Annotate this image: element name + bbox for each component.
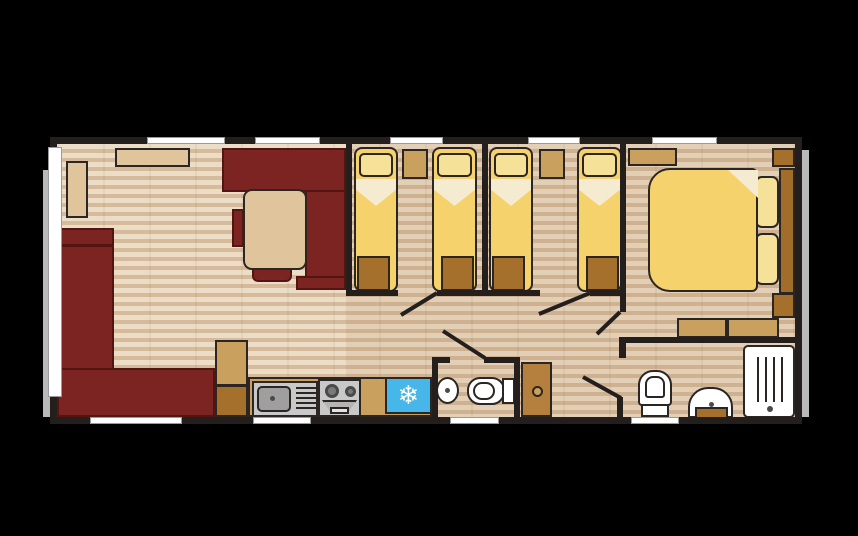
wall-wc-left [432,357,438,417]
wall-wc-right [514,357,520,417]
wall-master-bottom-tick [619,337,626,358]
outer-trim-right [802,150,809,417]
wall-twin-bottom-mid [437,290,540,296]
wall-twin1-twin2 [482,144,488,296]
window-lounge-front [48,147,62,397]
window-wc-bottom [450,417,499,424]
wall-twin1-left [346,144,352,296]
window-bathroom-bottom [631,417,679,424]
window-twin1-top [390,137,443,144]
floorplan-canvas: ❄ [0,0,858,536]
window-lounge-bottom [90,417,182,424]
window-twin2-top [528,137,580,144]
wall-master-left [620,144,626,312]
wall-wc-top-left [432,357,450,363]
window-lounge-top [147,137,225,144]
window-master-top [652,137,717,144]
wall-twin2-bottom-right [590,290,626,296]
wall-twin1-bottom [346,290,398,296]
wall-master-bottom [620,337,795,343]
window-dining-top [255,137,320,144]
window-kitchen-bottom [253,417,311,424]
wall-bathroom-left-stub [617,397,623,417]
exterior-walls [50,137,802,424]
